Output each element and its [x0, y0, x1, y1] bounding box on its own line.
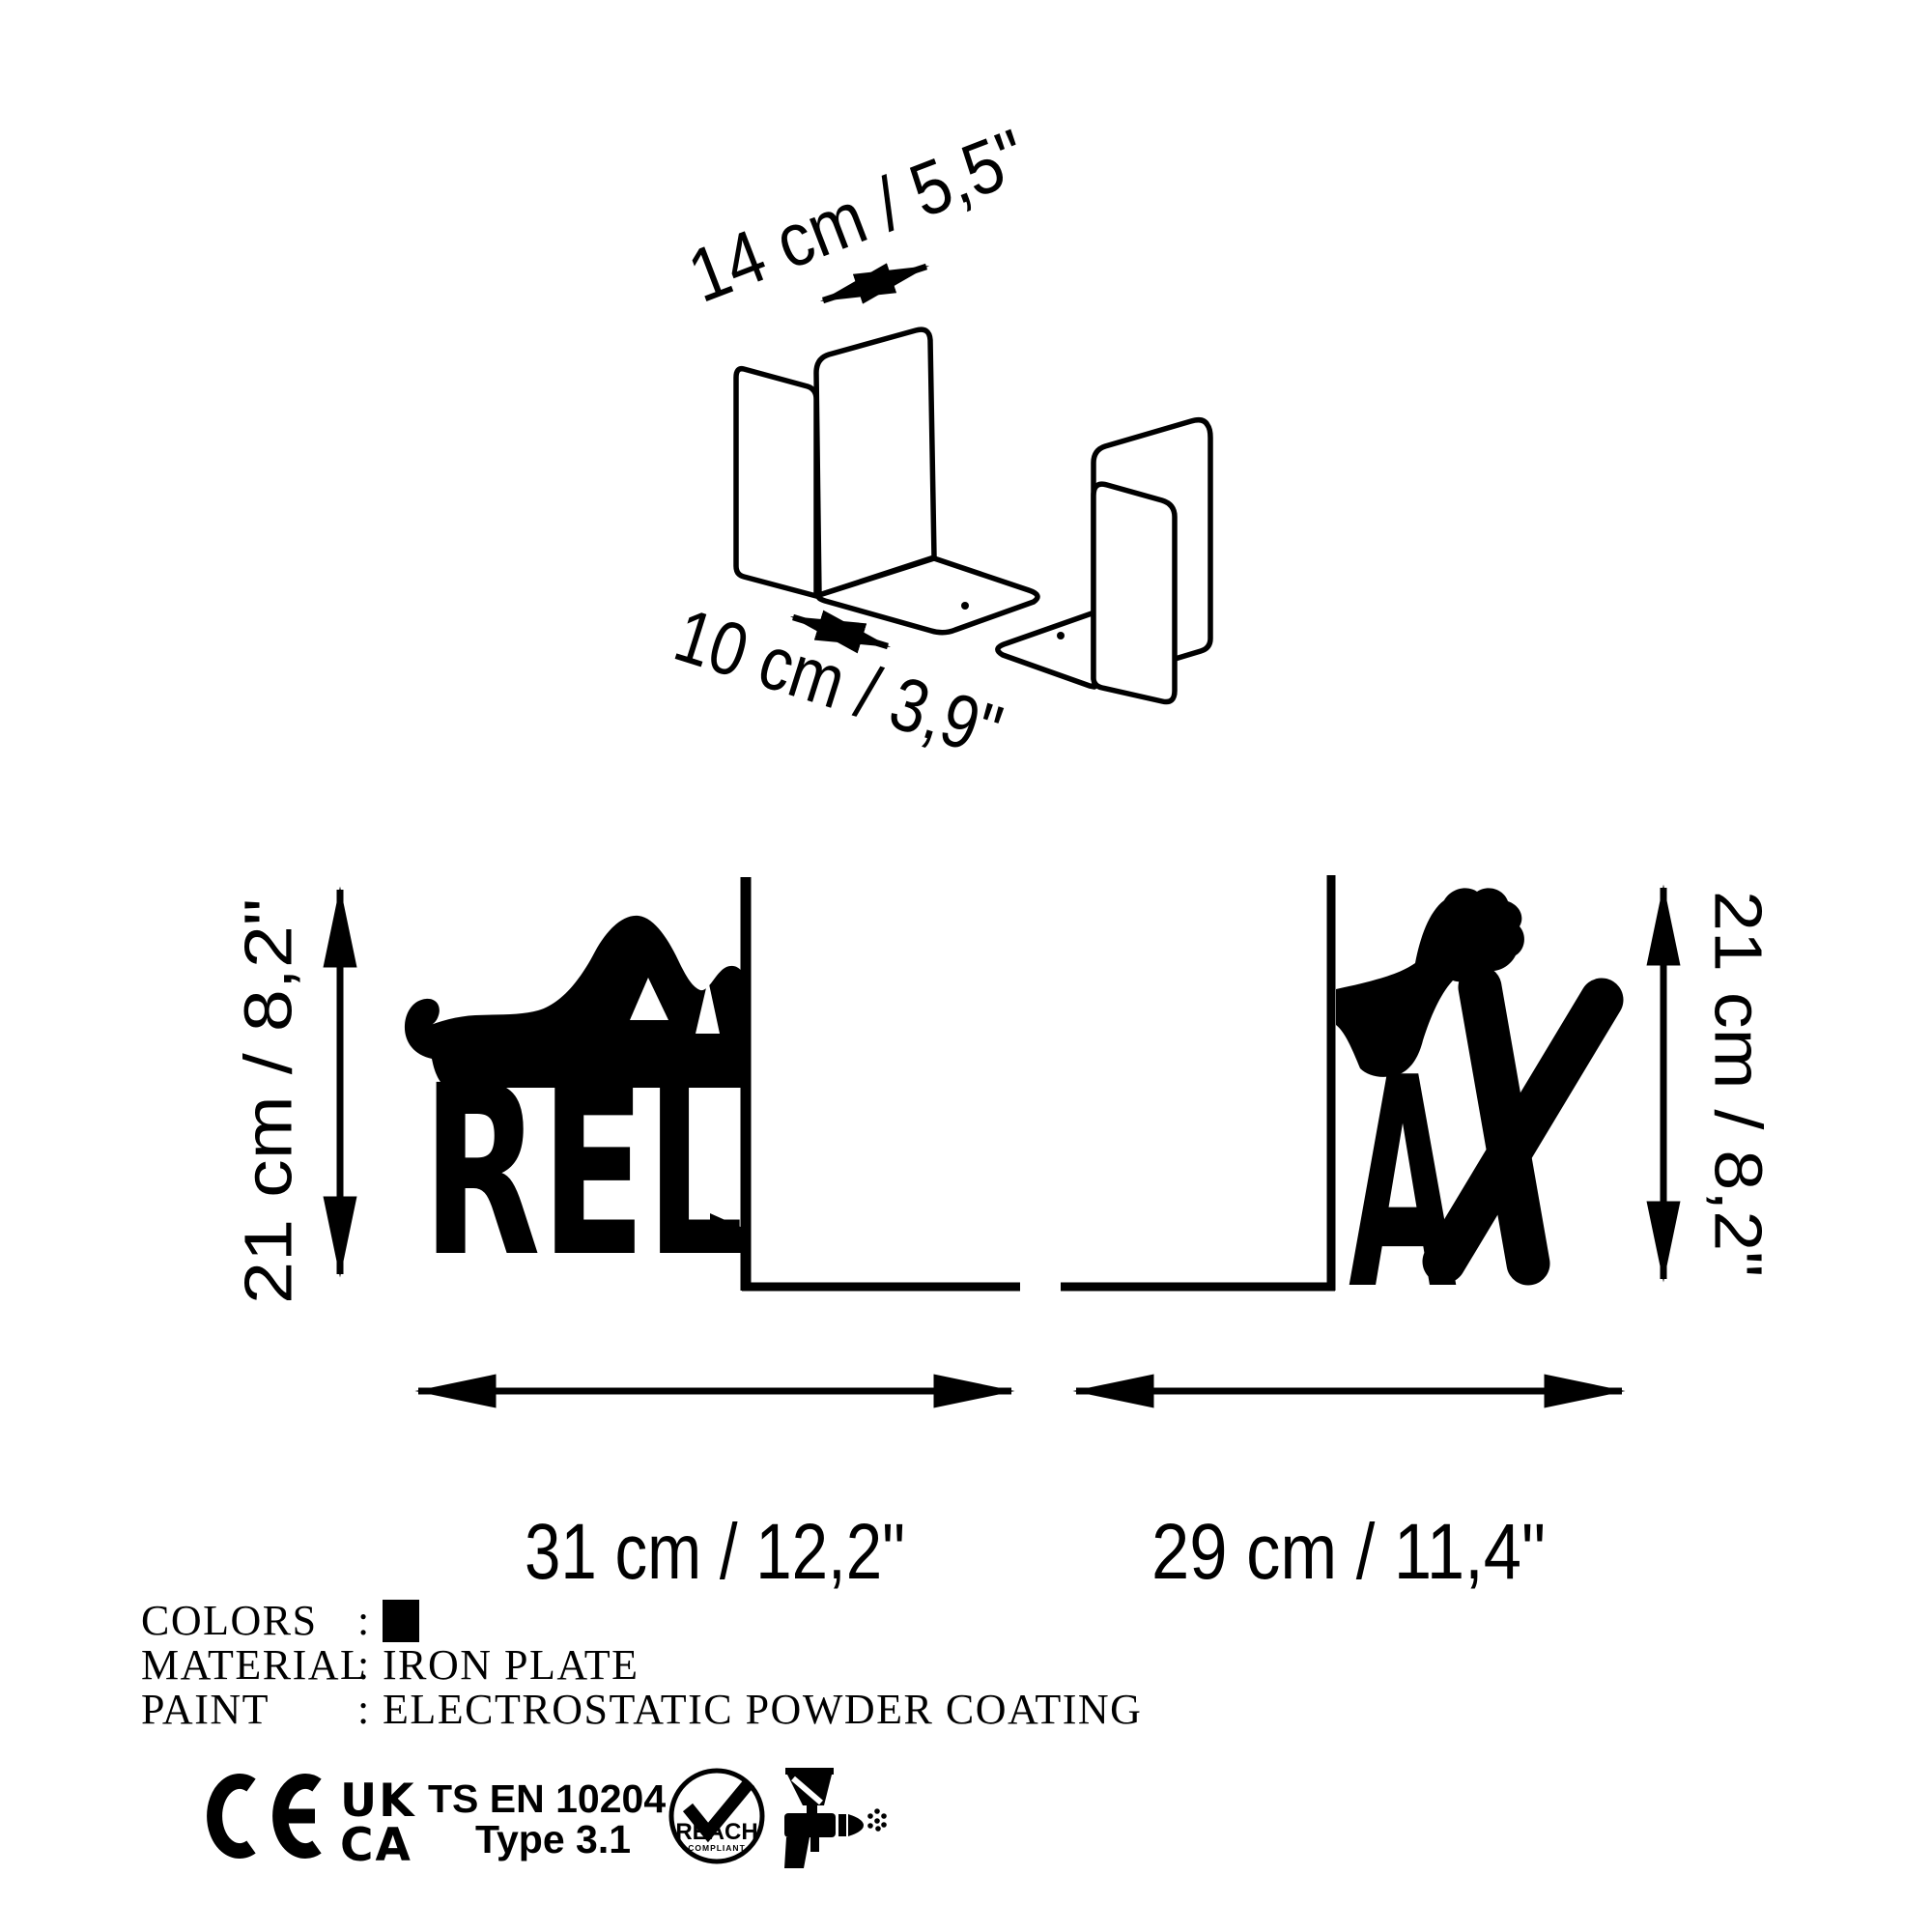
ce-mark-icon	[214, 1781, 317, 1851]
spec-label-colors: COLORS	[141, 1597, 318, 1644]
right-bookend-base-plate	[998, 612, 1094, 687]
certification-row: UK CA TS EN 10204 Type 3.1 REACH COMPLIA…	[214, 1768, 887, 1872]
spray-gun-nozzle-block	[838, 1814, 846, 1836]
left-bookend-front-panel	[816, 329, 934, 595]
spec-colon-material: :	[357, 1641, 371, 1689]
spec-colon-colors: :	[357, 1597, 371, 1644]
spec-colon-paint: :	[357, 1686, 371, 1733]
right-base-screw-hole	[1057, 632, 1065, 639]
ukca-mark: UK CA	[340, 1775, 416, 1872]
spray-gun-lid	[785, 1768, 834, 1775]
left-height-label: 21 cm / 8,2"	[230, 898, 305, 1304]
right-height-label: 21 cm / 8,2"	[1701, 891, 1776, 1277]
spec-value-paint: ELECTROSTATIC POWDER COATING	[383, 1686, 1142, 1733]
reach-sub-text: COMPLIANT	[688, 1843, 746, 1853]
left-base-screw-hole	[961, 602, 969, 610]
reach-compliant-icon: REACH COMPLIANT	[671, 1771, 762, 1861]
spray-gun-handle	[784, 1837, 810, 1868]
spray-gun-nozzle-cone	[848, 1814, 864, 1836]
spec-table: COLORS : MATERIAL : IRON PLATE PAINT : E…	[141, 1597, 1142, 1733]
front-view: REL A 21 cm / 8,2" 21 cm / 8,2" 31 cm / …	[230, 875, 1776, 1596]
reach-text: REACH	[675, 1819, 757, 1845]
ce-letter-c	[214, 1781, 251, 1851]
spray-gun-trigger	[810, 1837, 819, 1852]
left-width-label: 31 cm / 12,2"	[525, 1508, 905, 1596]
spec-label-paint: PAINT	[141, 1686, 270, 1733]
product-dimension-sheet: 14 cm / 5,5" 10 cm / 3,9" REL A 21 cm / …	[0, 0, 1932, 1932]
spray-gun-body	[784, 1813, 836, 1837]
left-bookend-back-panel	[736, 369, 816, 596]
spec-value-material: IRON PLATE	[383, 1641, 639, 1689]
diagram-canvas: 14 cm / 5,5" 10 cm / 3,9" REL A 21 cm / …	[0, 0, 1932, 1932]
spray-dots	[867, 1808, 887, 1832]
right-bookend-front-panel	[1094, 484, 1175, 701]
ukca-bottom-text: CA	[340, 1819, 412, 1872]
standard-type: Type 3.1	[475, 1817, 631, 1861]
left-letters: REL	[422, 1036, 744, 1309]
color-swatch	[383, 1600, 419, 1642]
depth-arrow-14cm	[823, 267, 926, 300]
spec-label-material: MATERIAL	[141, 1641, 367, 1689]
right-width-label: 29 cm / 11,4"	[1151, 1508, 1546, 1596]
spray-gun-icon	[784, 1768, 887, 1868]
standard-code: TS EN 10204	[428, 1776, 666, 1821]
